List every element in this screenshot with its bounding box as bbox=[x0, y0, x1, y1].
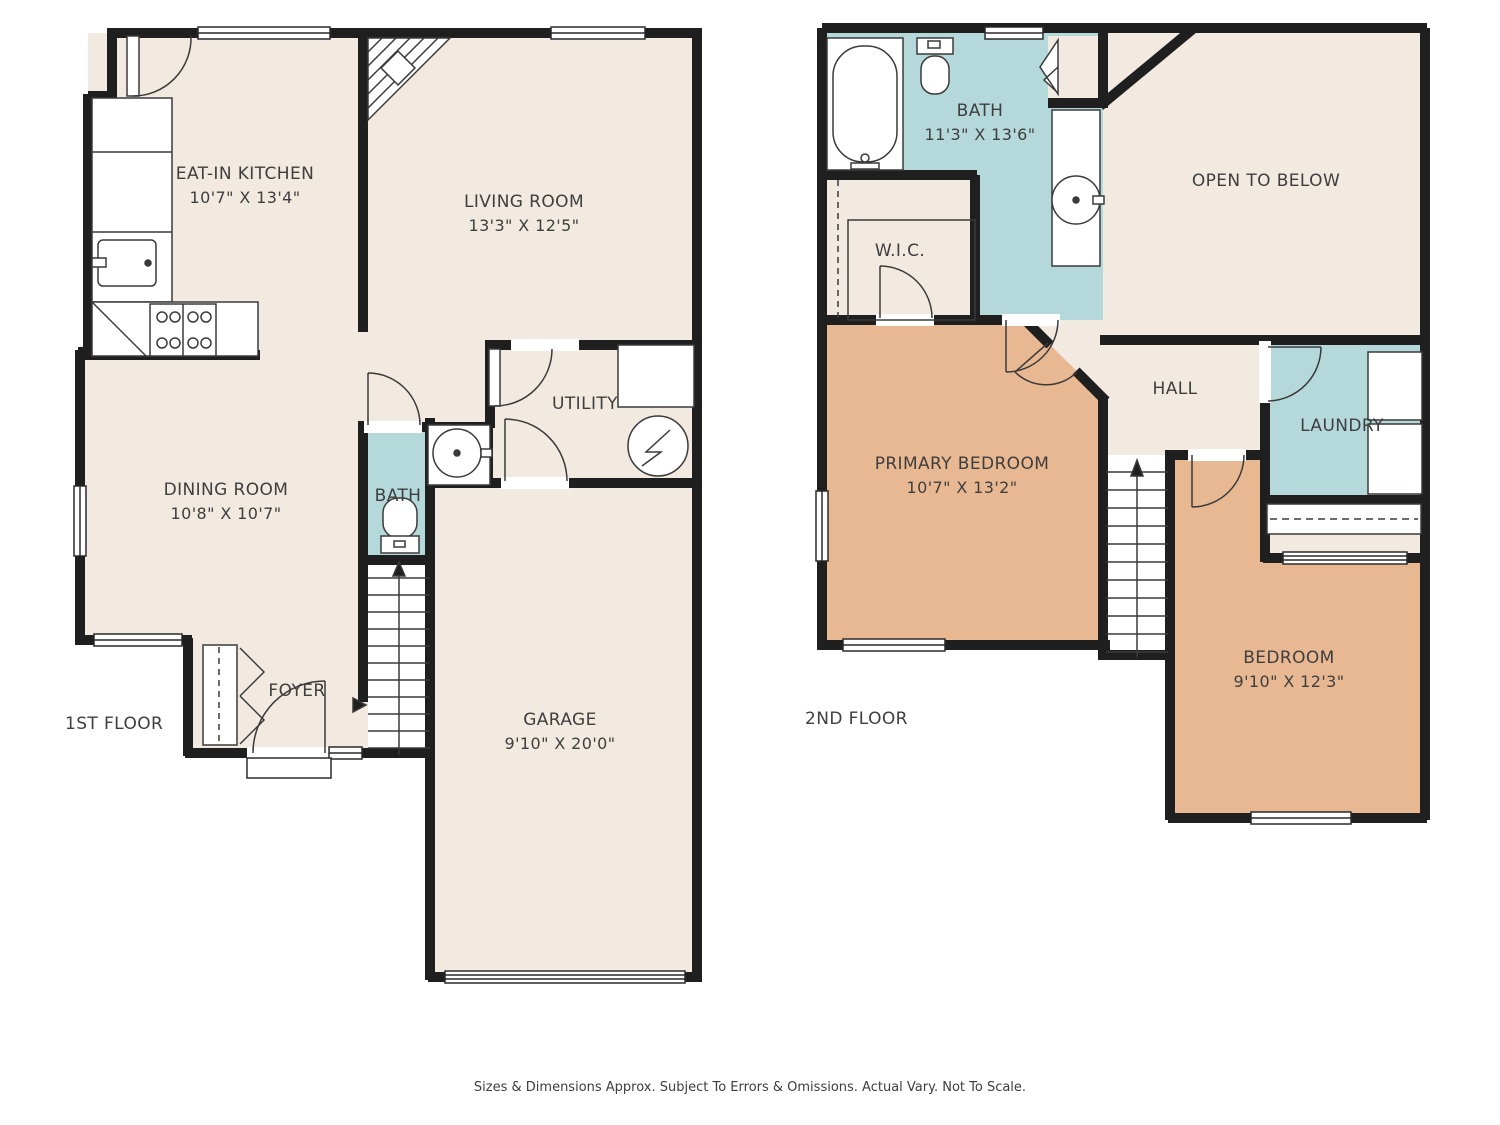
label-primary-bedroom: PRIMARY BEDROOM 10'7" X 13'2" bbox=[875, 452, 1050, 500]
dining-side-window bbox=[74, 486, 86, 556]
garage-service-door-opening bbox=[501, 477, 569, 489]
toilet2-icon bbox=[917, 38, 953, 94]
bath2-name: BATH bbox=[925, 99, 1036, 123]
label-bath1: BATH bbox=[375, 484, 422, 508]
label-bedroom: BEDROOM 9'10" X 12'3" bbox=[1234, 646, 1345, 694]
hall-closet-rail bbox=[1267, 504, 1421, 534]
stove-icon bbox=[150, 304, 216, 356]
vanity-sink-icon bbox=[1052, 110, 1104, 266]
washer-icon bbox=[1368, 352, 1422, 420]
wic-name: W.I.C. bbox=[875, 239, 925, 263]
garage-door bbox=[445, 971, 685, 983]
disclaimer-text: Sizes & Dimensions Approx. Subject To Er… bbox=[0, 1080, 1500, 1095]
label-kitchen: EAT-IN KITCHEN 10'7" X 13'4" bbox=[176, 162, 314, 210]
dining-dims: 10'8" X 10'7" bbox=[164, 502, 289, 526]
dining-bottom-window bbox=[94, 634, 182, 646]
label-laundry: LAUNDRY bbox=[1300, 414, 1384, 438]
water-heater-icon bbox=[628, 416, 688, 476]
floor2-title: 2ND FLOOR bbox=[805, 709, 908, 729]
utility-name: UTILITY bbox=[552, 392, 618, 416]
bedroom-door-opening bbox=[1188, 449, 1246, 461]
garage-name: GARAGE bbox=[505, 708, 616, 732]
kitchen-counter bbox=[92, 98, 172, 302]
open-below-name: OPEN TO BELOW bbox=[1192, 169, 1340, 193]
label-dining: DINING ROOM 10'8" X 10'7" bbox=[164, 478, 289, 526]
kitchen-name: EAT-IN KITCHEN bbox=[176, 162, 314, 186]
label-utility: UTILITY bbox=[552, 392, 618, 416]
bath2-dims: 11'3" X 13'6" bbox=[925, 123, 1036, 147]
dining-name: DINING ROOM bbox=[164, 478, 289, 502]
utility-door-opening bbox=[511, 339, 579, 351]
label-bath2: BATH 11'3" X 13'6" bbox=[925, 99, 1036, 147]
laundry-name: LAUNDRY bbox=[1300, 414, 1384, 438]
kitchen-window bbox=[198, 27, 330, 39]
bath1-door-opening bbox=[364, 421, 422, 433]
bedroom-closet-sliding-doors bbox=[1283, 552, 1407, 564]
foyer-sidelight-window bbox=[329, 747, 362, 759]
label-garage: GARAGE 9'10" X 20'0" bbox=[505, 708, 616, 756]
label-living: LIVING ROOM 13'3" X 12'5" bbox=[464, 190, 584, 238]
primary-bottom-window bbox=[843, 639, 945, 651]
kitchen-bottom-counter bbox=[92, 302, 258, 356]
foyer-name: FOYER bbox=[268, 679, 325, 703]
primary-dims: 10'7" X 13'2" bbox=[875, 476, 1050, 500]
living-dims: 13'3" X 12'5" bbox=[464, 214, 584, 238]
laundry-door-opening bbox=[1259, 341, 1271, 403]
label-wic: W.I.C. bbox=[875, 239, 925, 263]
bedroom-name: BEDROOM bbox=[1234, 646, 1345, 670]
bathtub-icon bbox=[827, 38, 903, 170]
bedroom-dims: 9'10" X 12'3" bbox=[1234, 670, 1345, 694]
bedroom-window bbox=[1251, 812, 1351, 824]
floorplan-page: EAT-IN KITCHEN 10'7" X 13'4" LIVING ROOM… bbox=[0, 0, 1500, 1125]
living-window bbox=[551, 27, 645, 39]
garage-dims: 9'10" X 20'0" bbox=[505, 732, 616, 756]
bath1-name: BATH bbox=[375, 484, 422, 508]
hall-name: HALL bbox=[1153, 377, 1198, 401]
label-open-below: OPEN TO BELOW bbox=[1192, 169, 1340, 193]
label-foyer: FOYER bbox=[268, 679, 325, 703]
bath2-door-opening bbox=[1002, 314, 1060, 326]
porch-step bbox=[247, 758, 331, 778]
utility-appliance bbox=[618, 345, 694, 407]
bath2-window bbox=[985, 27, 1043, 39]
label-hall: HALL bbox=[1153, 377, 1198, 401]
primary-name: PRIMARY BEDROOM bbox=[875, 452, 1050, 476]
front-door-opening bbox=[247, 747, 329, 759]
floor1-title: 1ST FLOOR bbox=[65, 714, 163, 734]
kitchen-dims: 10'7" X 13'4" bbox=[176, 186, 314, 210]
primary-side-window bbox=[816, 491, 828, 561]
living-name: LIVING ROOM bbox=[464, 190, 584, 214]
powder-sink-icon bbox=[428, 425, 492, 485]
